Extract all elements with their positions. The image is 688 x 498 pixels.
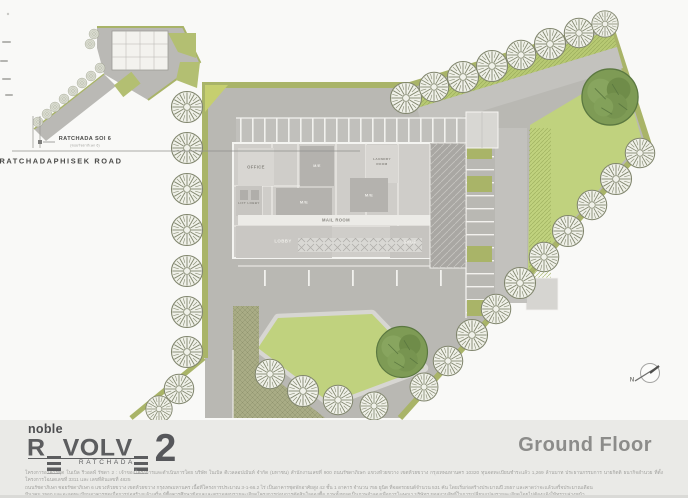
sketch-tree-icon [477, 51, 508, 82]
inset-tree-icon [95, 63, 105, 73]
sketch-tree-icon [172, 174, 203, 205]
inset-leader-dot [38, 140, 42, 144]
sketch-tree-icon [164, 374, 193, 403]
room-me-center [276, 188, 332, 216]
sketch-tree-icon [172, 337, 203, 368]
disclaimer-line-2: ถนนรัชดาภิเษก ซอยรัชดาภิเษก 6 แขวงห้วยขว… [25, 485, 663, 492]
sketch-tree-icon [288, 376, 319, 407]
inset-tree-icon [89, 29, 99, 39]
sketch-tree-icon [535, 29, 566, 60]
sketch-tree-icon [172, 215, 203, 246]
logo-subtitle: RATCHADA [28, 458, 135, 467]
disclaimer-line-3: มีนาคม 2560 และจะจดทะเบียนอาคารชุดเมื่อก… [25, 492, 663, 498]
site-plan-page: OFFICE LIFT LOBBY M/E M/E M/E LAUNDRY RO… [0, 0, 688, 498]
sketch-tree-icon [172, 92, 203, 123]
inset-tree-icon [42, 109, 52, 119]
sketch-tree-icon [592, 11, 618, 37]
inset-tree-icon [85, 39, 95, 49]
disclaimer-text: โครงการอาคารชุด โนเบิล รีวอลฟ์ รัชดา 2 :… [25, 470, 663, 498]
sketch-tree-icon [360, 392, 388, 420]
sketch-tree-icon [419, 72, 448, 101]
sketch-tree-icon [255, 359, 284, 388]
east-parking [466, 138, 494, 318]
sketch-tree-icon [505, 268, 536, 299]
footer-bar: noble R E V O L V E 2 RATCHADA Ground Fl… [0, 420, 688, 498]
sketch-tree-icon [433, 346, 462, 375]
sketch-tree-icon [172, 133, 203, 164]
sketch-tree-icon [457, 320, 488, 351]
room-me-top [300, 146, 334, 186]
room-laundry [366, 145, 398, 183]
sketch-tree-icon [601, 164, 632, 195]
room-me-right [350, 178, 388, 212]
lobby-benches [298, 238, 422, 252]
inset-tree-icon [50, 102, 60, 112]
sketch-tree-icon [506, 40, 535, 69]
inset-tree-icon [68, 86, 78, 96]
inset-tree-icon [77, 78, 87, 88]
inset-tree-icon [59, 94, 69, 104]
sketch-tree-icon [172, 256, 203, 287]
room-office [238, 148, 274, 186]
sketch-tree-icon [564, 18, 593, 47]
sketch-tree-icon [146, 396, 172, 420]
inset-tree-icon [86, 71, 96, 81]
sketch-tree-icon [481, 294, 510, 323]
sketch-tree-icon [577, 190, 606, 219]
corridor [238, 215, 432, 225]
inset-tree-icon [33, 117, 43, 127]
sketch-tree-icon [323, 385, 352, 414]
sketch-tree-icon [553, 216, 584, 247]
dense-tree [377, 327, 428, 378]
page-title: Ground Floor [518, 434, 652, 457]
sketch-tree-icon [625, 138, 654, 167]
sketch-tree-icon [529, 242, 558, 271]
disclaimer-line-1: โครงการอาคารชุด โนเบิล รีวอลฟ์ รัชดา 2 :… [25, 470, 663, 485]
site-plan-drawing [0, 0, 688, 420]
south-parking-row [238, 266, 462, 286]
dense-tree [582, 69, 638, 125]
sketch-tree-icon [172, 297, 203, 328]
north-parking-row [236, 118, 478, 143]
sketch-tree-icon [448, 62, 479, 93]
sketch-tree-icon [391, 83, 422, 114]
sketch-tree-icon [410, 373, 438, 401]
